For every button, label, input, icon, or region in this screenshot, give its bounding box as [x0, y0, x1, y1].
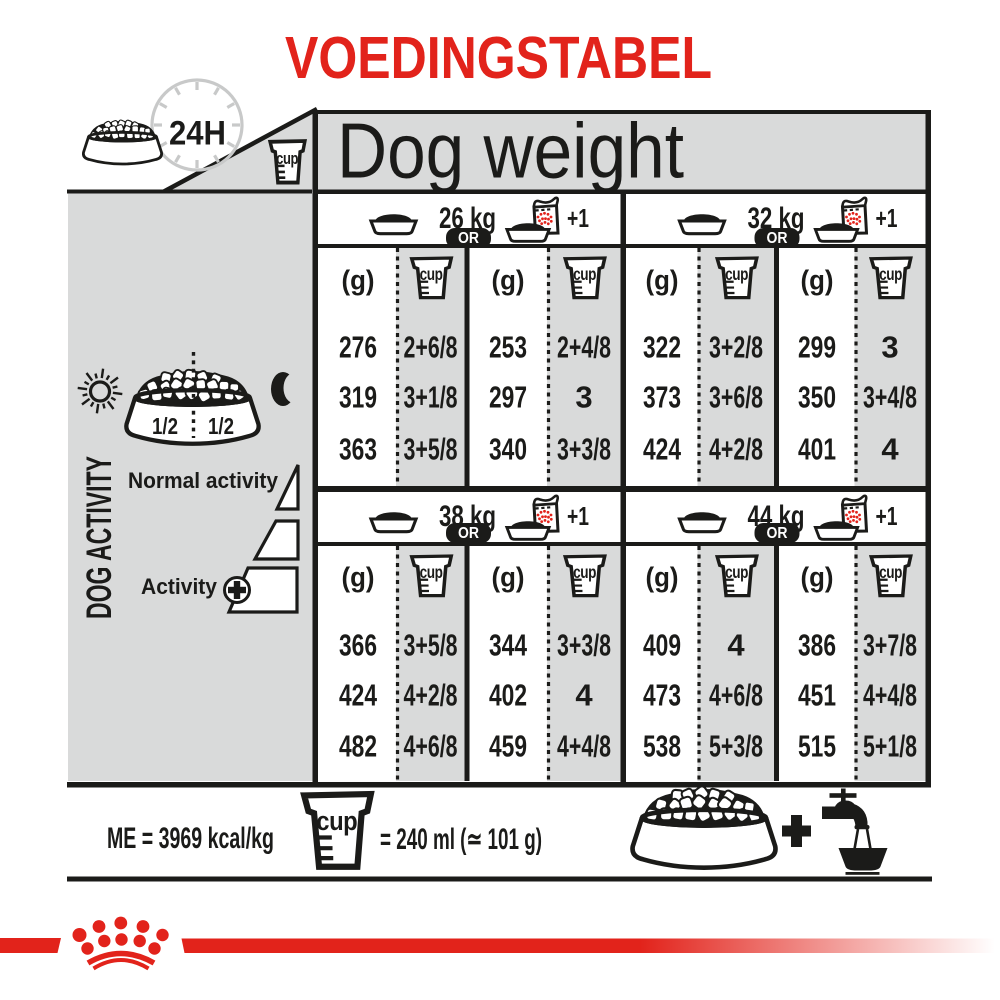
svg-text:344: 344 — [489, 627, 528, 662]
svg-text:4+2/8: 4+2/8 — [404, 677, 458, 712]
svg-text:363: 363 — [339, 431, 377, 466]
svg-text:3+6/8: 3+6/8 — [709, 379, 763, 414]
svg-text:350: 350 — [798, 379, 836, 414]
svg-text:3+5/8: 3+5/8 — [404, 627, 458, 662]
svg-text:Dog weight: Dog weight — [337, 109, 684, 195]
svg-text:+1: +1 — [567, 203, 589, 233]
svg-text:5+3/8: 5+3/8 — [709, 728, 763, 763]
svg-text:= 240 ml (≃ 101 g): = 240 ml (≃ 101 g) — [380, 823, 542, 856]
svg-text:4: 4 — [881, 431, 899, 466]
svg-text:(g): (g) — [492, 265, 525, 296]
svg-text:3: 3 — [575, 379, 592, 414]
svg-text:4+4/8: 4+4/8 — [863, 677, 917, 712]
svg-text:(g): (g) — [801, 562, 834, 593]
svg-text:366: 366 — [339, 627, 377, 662]
svg-text:(g): (g) — [342, 562, 375, 593]
svg-text:+1: +1 — [567, 501, 589, 531]
svg-text:(g): (g) — [801, 265, 834, 296]
svg-text:4+2/8: 4+2/8 — [709, 431, 763, 466]
svg-text:473: 473 — [643, 677, 681, 712]
svg-text:cup: cup — [573, 264, 596, 284]
svg-text:3+2/8: 3+2/8 — [709, 329, 763, 364]
svg-text:424: 424 — [643, 431, 682, 466]
svg-text:cup: cup — [879, 562, 902, 582]
svg-text:cup: cup — [879, 264, 902, 284]
svg-text:451: 451 — [798, 677, 836, 712]
svg-text:5+1/8: 5+1/8 — [863, 728, 917, 763]
svg-text:1/2: 1/2 — [208, 413, 234, 439]
svg-text:DOG ACTIVITY: DOG ACTIVITY — [80, 456, 119, 619]
svg-text:515: 515 — [798, 728, 836, 763]
svg-text:3+3/8: 3+3/8 — [557, 431, 611, 466]
svg-text:3: 3 — [881, 329, 898, 364]
svg-text:cup: cup — [420, 264, 443, 284]
svg-text:(g): (g) — [646, 562, 679, 593]
svg-text:cup: cup — [276, 149, 298, 168]
svg-text:538: 538 — [643, 728, 681, 763]
svg-text:VOEDINGSTABEL: VOEDINGSTABEL — [285, 25, 712, 91]
svg-text:3+7/8: 3+7/8 — [863, 627, 917, 662]
svg-text:3+3/8: 3+3/8 — [557, 627, 611, 662]
svg-text:(g): (g) — [342, 265, 375, 296]
svg-text:409: 409 — [643, 627, 681, 662]
svg-text:(g): (g) — [492, 562, 525, 593]
svg-text:299: 299 — [798, 329, 836, 364]
svg-text:297: 297 — [489, 379, 527, 414]
svg-text:OR: OR — [767, 525, 788, 542]
svg-text:276: 276 — [339, 329, 377, 364]
svg-text:4+4/8: 4+4/8 — [557, 728, 611, 763]
svg-text:+1: +1 — [876, 501, 898, 531]
svg-text:4+6/8: 4+6/8 — [404, 728, 458, 763]
svg-text:cup: cup — [420, 562, 443, 582]
svg-text:322: 322 — [643, 329, 681, 364]
svg-text:340: 340 — [489, 431, 527, 466]
svg-text:4: 4 — [575, 677, 593, 712]
svg-text:(g): (g) — [646, 265, 679, 296]
svg-text:386: 386 — [798, 627, 836, 662]
svg-text:+1: +1 — [876, 203, 898, 233]
svg-text:cup: cup — [316, 806, 357, 836]
svg-text:2+4/8: 2+4/8 — [557, 329, 611, 364]
svg-text:482: 482 — [339, 728, 377, 763]
svg-text:401: 401 — [798, 431, 836, 466]
svg-text:424: 424 — [339, 677, 378, 712]
svg-text:OR: OR — [458, 525, 479, 542]
svg-text:459: 459 — [489, 728, 527, 763]
svg-text:2+6/8: 2+6/8 — [404, 329, 458, 364]
svg-text:4: 4 — [727, 627, 745, 662]
svg-text:Activity: Activity — [141, 574, 218, 599]
svg-text:3+4/8: 3+4/8 — [863, 379, 917, 414]
svg-text:Normal activity: Normal activity — [128, 468, 279, 493]
svg-text:cup: cup — [725, 562, 748, 582]
svg-text:1/2: 1/2 — [152, 413, 178, 439]
svg-text:373: 373 — [643, 379, 681, 414]
svg-text:3+5/8: 3+5/8 — [404, 431, 458, 466]
svg-text:3+1/8: 3+1/8 — [404, 379, 458, 414]
svg-text:cup: cup — [573, 562, 596, 582]
svg-text:319: 319 — [339, 379, 377, 414]
svg-text:24H: 24H — [169, 115, 226, 153]
svg-text:402: 402 — [489, 677, 527, 712]
svg-text:253: 253 — [489, 329, 527, 364]
svg-text:cup: cup — [725, 264, 748, 284]
svg-text:ME = 3969 kcal/kg: ME = 3969 kcal/kg — [107, 822, 274, 855]
svg-text:4+6/8: 4+6/8 — [709, 677, 763, 712]
